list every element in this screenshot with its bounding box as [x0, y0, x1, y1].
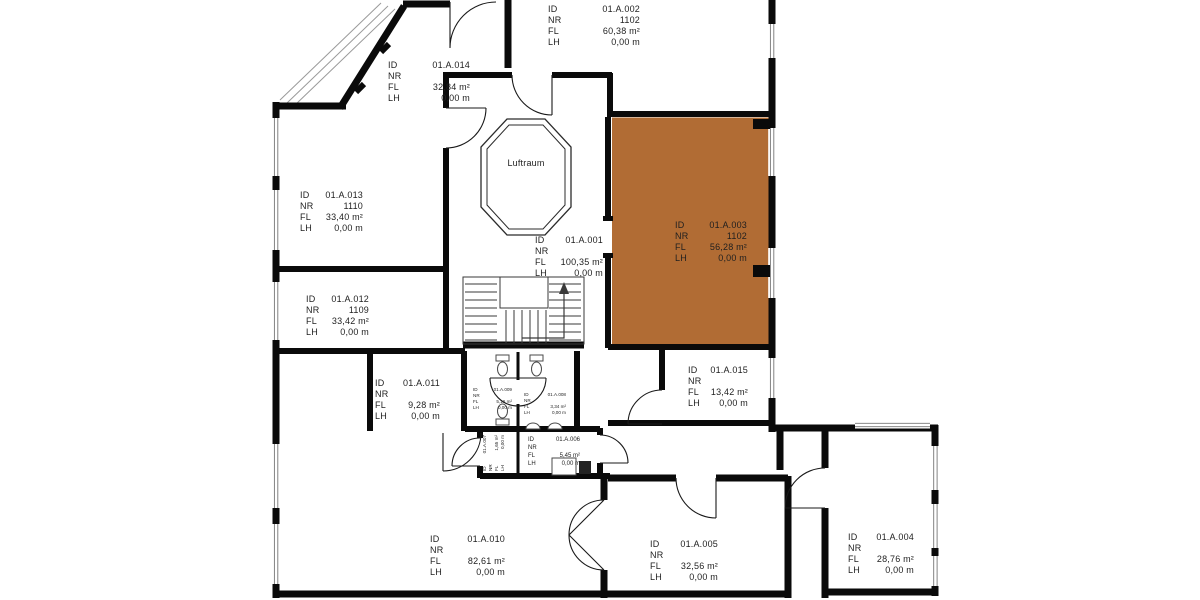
room-area-01a014[interactable] [348, 4, 444, 104]
svg-text:1102: 1102 [727, 231, 747, 241]
svg-text:56,28 m²: 56,28 m² [710, 242, 747, 252]
room-area-01a007[interactable] [482, 432, 516, 474]
room-area-01a013[interactable] [280, 112, 442, 266]
room-area-01a001[interactable] [450, 78, 604, 342]
floor-plan-canvas: ID01.A.002 NR1102 FL60,38 m² LH0,00 m ID… [0, 0, 1200, 600]
svg-text:0,00 m: 0,00 m [718, 253, 747, 263]
room-area-01a008[interactable] [521, 354, 574, 426]
floor-plan-drawing: ID01.A.002 NR1102 FL60,38 m² LH0,00 m ID… [0, 0, 1200, 600]
svg-text:NR: NR [675, 231, 689, 241]
svg-text:FL: FL [675, 242, 686, 252]
room-area-01a009[interactable] [467, 354, 515, 426]
room-area-01a011[interactable] [374, 354, 462, 428]
svg-text:01.A.003: 01.A.003 [709, 220, 747, 230]
room-area-01a006[interactable] [521, 432, 597, 474]
svg-text:ID: ID [675, 220, 685, 230]
room-area-01a015[interactable] [666, 352, 768, 420]
svg-text:LH: LH [675, 253, 687, 263]
room-area-01a004[interactable] [829, 432, 931, 590]
room-area-01a005[interactable] [608, 482, 784, 590]
room-area-01a012[interactable] [280, 272, 442, 348]
